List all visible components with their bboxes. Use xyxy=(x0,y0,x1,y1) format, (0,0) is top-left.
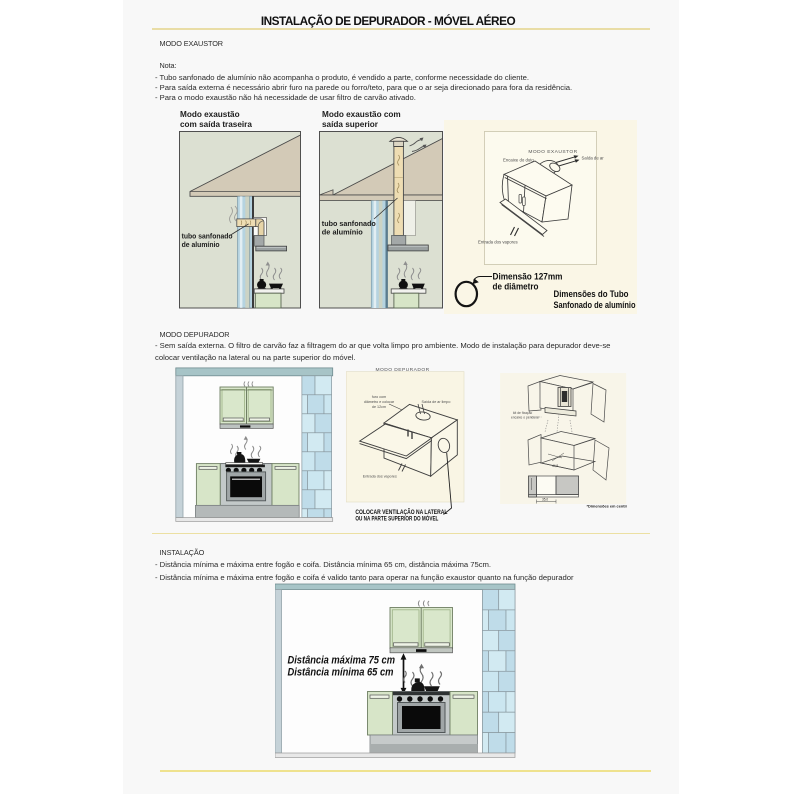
svg-text:44,8: 44,8 xyxy=(552,464,558,468)
svg-text:Entrada dos vapores: Entrada dos vapores xyxy=(362,475,396,479)
svg-text:de diâmetro: de diâmetro xyxy=(493,282,540,292)
svg-text:Saída de ar: Saída de ar xyxy=(582,156,605,161)
svg-text:*Dimensões em centímetros: *Dimensões em centímetros xyxy=(586,504,627,509)
svg-text:Sanfonado de alumínio: Sanfonado de alumínio xyxy=(554,300,637,310)
svg-text:de alumínio: de alumínio xyxy=(321,227,362,236)
svg-text:Distância mínima 65 cm: Distância mínima 65 cm xyxy=(288,667,394,679)
svg-text:Entrada dos vapores: Entrada dos vapores xyxy=(478,240,518,245)
svg-text:Distância máxima 75 cm: Distância máxima 75 cm xyxy=(288,655,396,667)
svg-text:Encaixe do duto: Encaixe do duto xyxy=(503,158,534,163)
svg-text:encaixe o pendurar: encaixe o pendurar xyxy=(511,416,540,420)
svg-text:Saída de ar limpo: Saída de ar limpo xyxy=(421,400,450,404)
svg-text:de 12cm: de 12cm xyxy=(371,405,385,409)
svg-text:MODO EXAUSTOR: MODO EXAUSTOR xyxy=(528,149,577,155)
svg-text:diâmetro e colocar: diâmetro e colocar xyxy=(363,400,394,404)
svg-text:OU NA PARTE SUPERIOR DO MÓVEL: OU NA PARTE SUPERIOR DO MÓVEL xyxy=(355,513,438,522)
svg-text:Dimensões do Tubo: Dimensões do Tubo xyxy=(554,289,630,299)
svg-text:kit de fixação: kit de fixação xyxy=(513,411,532,415)
svg-text:Dimensão 127mm: Dimensão 127mm xyxy=(493,272,563,282)
svg-text:35,0: 35,0 xyxy=(542,498,548,502)
svg-text:de alumínio: de alumínio xyxy=(182,240,220,249)
svg-text:furo com: furo com xyxy=(371,395,385,399)
